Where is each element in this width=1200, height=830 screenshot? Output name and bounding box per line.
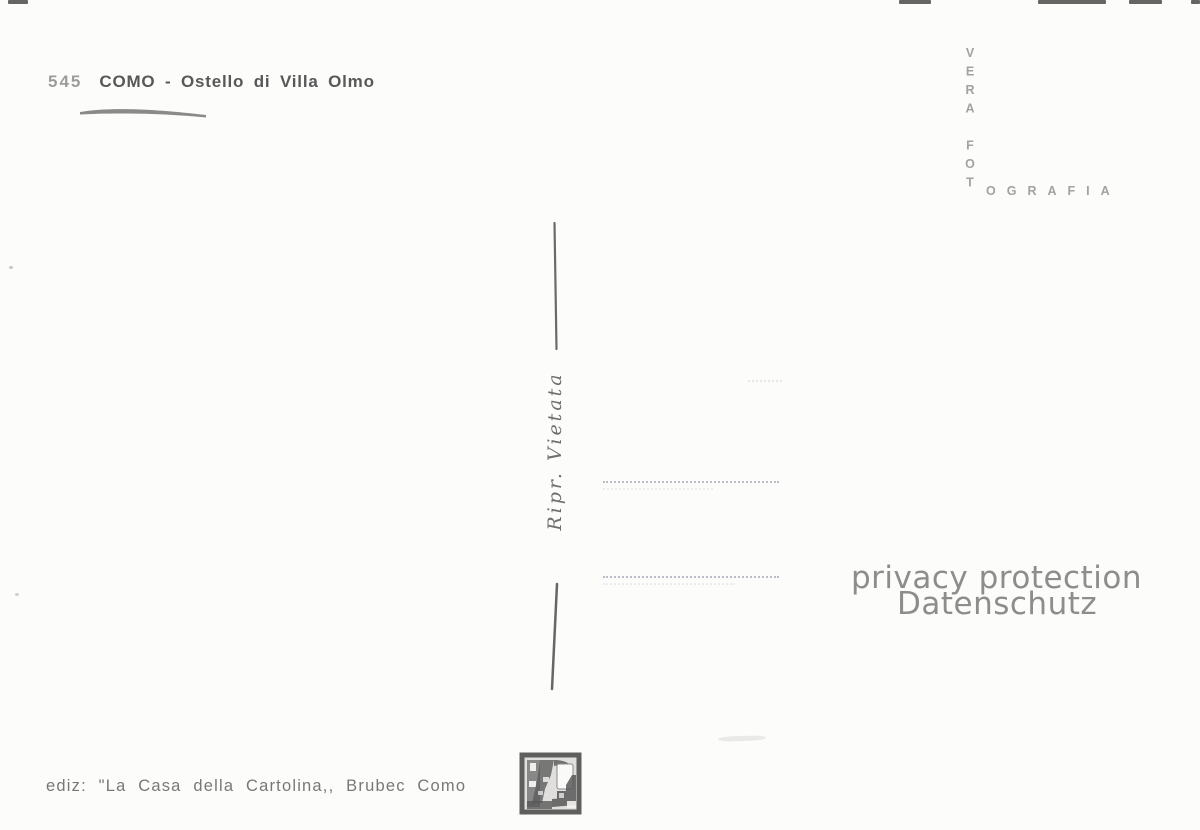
scan-artifact-dash — [1038, 0, 1106, 4]
publisher-line: ediz: "La Casa della Cartolina,, Brubec … — [46, 777, 466, 796]
postcard-back-scan: { "colors": { "ink_dark": "#585858", "in… — [0, 0, 1200, 830]
ripr-vietata-label: Ripr. Vietata — [544, 351, 570, 551]
address-dotted-line — [603, 481, 779, 483]
caption-underline-stroke — [78, 106, 212, 122]
address-dotted-line-echo — [603, 583, 735, 585]
scan-smudge — [718, 735, 766, 742]
address-dotted-line-short — [748, 380, 782, 385]
card-title: COMO - Ostello di Villa Olmo — [99, 72, 374, 92]
scan-speck — [9, 266, 13, 269]
vera-fotografia-horizontal: OGRAFIA — [986, 184, 1121, 198]
printer-stamp-icon — [518, 751, 584, 818]
address-dotted-line — [603, 576, 779, 578]
caption-row: 545 COMO - Ostello di Villa Olmo — [48, 72, 375, 92]
privacy-watermark-line2: Datenschutz — [897, 586, 1097, 622]
scan-speck — [15, 593, 19, 596]
address-dotted-line-echo — [603, 488, 713, 490]
vera-fotografia-vertical: VERA FOT — [963, 46, 977, 194]
scan-artifact-dash — [899, 0, 931, 4]
card-number: 545 — [48, 72, 82, 92]
scan-artifact-dash — [8, 0, 28, 4]
scan-artifact-dash — [1191, 0, 1200, 4]
scan-artifact-dash — [1129, 0, 1162, 4]
